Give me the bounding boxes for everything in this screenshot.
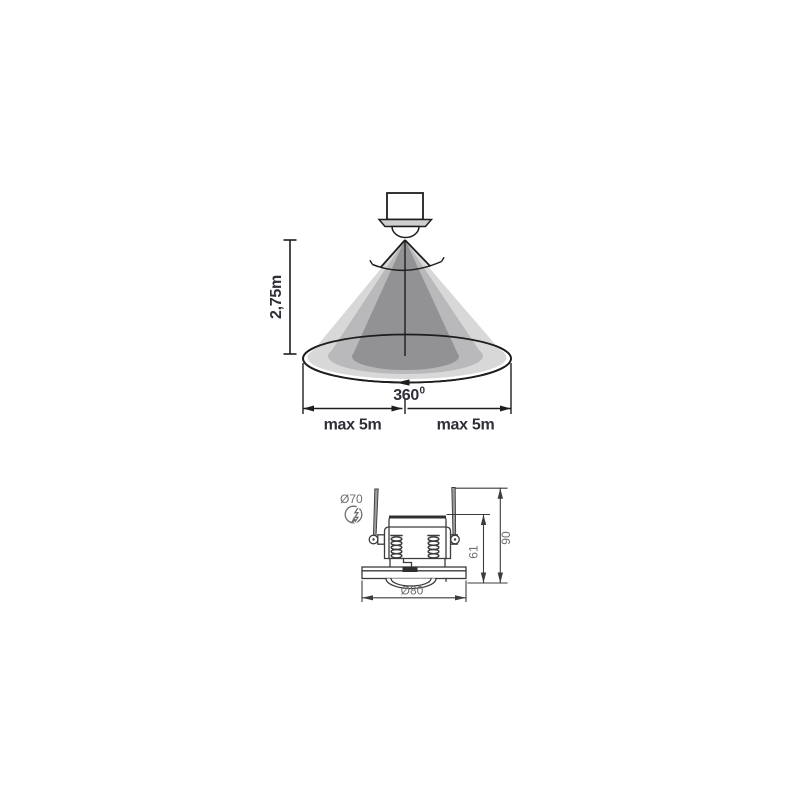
h61-arrow-bottom — [481, 573, 486, 584]
spring-clip-right — [452, 488, 456, 540]
h90-arrow-bottom — [498, 573, 503, 584]
sensor-flange — [379, 220, 432, 227]
sensor-spec-sheet: 2,75m 360 0 max 5m max 5m Ø70 — [0, 0, 800, 800]
outer-diameter-label: Ø80 — [401, 584, 424, 598]
coverage-cone — [303, 240, 511, 386]
detection-range-diagram: 2,75m 360 0 max 5m max 5m — [268, 193, 511, 434]
overall-height-label: 90 — [499, 531, 513, 545]
range-arrow-far-left — [303, 406, 314, 412]
mounting-height-label: 2,75m — [268, 275, 285, 319]
sensor-housing — [387, 193, 423, 220]
spring-clip-left — [373, 489, 378, 540]
dimension-drawing: Ø70 — [340, 488, 513, 602]
fixture-section — [362, 488, 466, 589]
sensor-dome — [392, 227, 419, 238]
pivot-bracket-left — [378, 535, 385, 544]
sensor-unit — [379, 193, 432, 238]
pivot-pin-left-center — [372, 538, 374, 540]
diagram-canvas: 2,75m 360 0 max 5m max 5m Ø70 — [0, 0, 800, 800]
step-notch — [404, 559, 412, 568]
h90-arrow-top — [498, 488, 503, 499]
dia-arrow-right — [455, 595, 466, 600]
cutout-diameter-label: Ø70 — [340, 492, 363, 506]
range-left-label: max 5m — [324, 417, 382, 434]
height-dimension: 2,75m — [268, 240, 297, 354]
diameter-dimension: Ø80 — [362, 581, 466, 602]
rotation-angle-superscript: 0 — [420, 386, 426, 397]
flange-latch — [403, 567, 418, 572]
recess-depth-label: 61 — [467, 545, 481, 559]
pivot-pin-right-center — [454, 538, 456, 540]
dia-arrow-left — [362, 595, 373, 600]
cutout-hole-symbol: Ø70 — [340, 492, 363, 524]
rotation-angle-value: 360 — [393, 387, 419, 404]
range-right-label: max 5m — [437, 417, 495, 434]
range-arrow-center — [392, 406, 403, 412]
h61-arrow-top — [481, 515, 486, 526]
range-arrow-far-right — [500, 406, 511, 412]
rotation-angle: 360 0 — [393, 386, 425, 405]
